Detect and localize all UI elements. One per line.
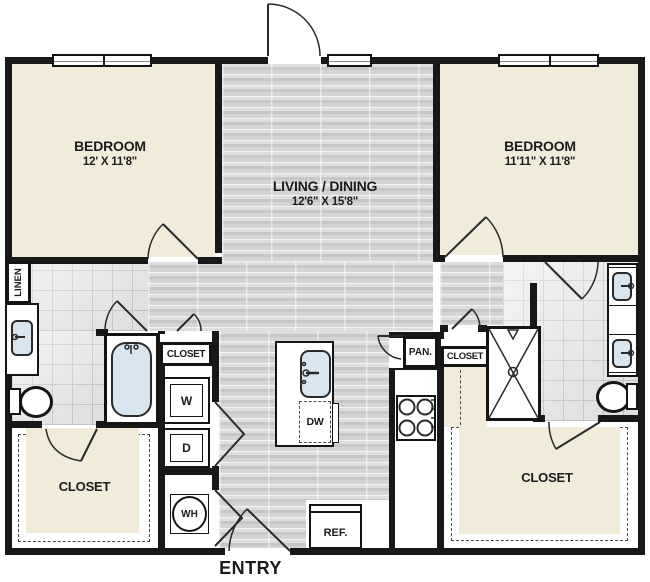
bedroomL-door-leaf	[163, 224, 198, 259]
hall-closet-door-leaf	[177, 314, 194, 331]
entry-label: ENTRY	[198, 558, 303, 579]
floorplan: LINEN CLOSET W D WH DW PAN.	[0, 0, 650, 582]
bedroom-left-dims: 12' X 11'8"	[30, 156, 190, 168]
closet-left-walkin-label: CLOSET	[27, 479, 142, 494]
closetR-door-leaf	[556, 422, 600, 449]
bedroom-right-dims: 11'11" X 11'8"	[460, 156, 620, 168]
water-heater-bifold-door	[215, 490, 242, 546]
laundry-bifold-door	[215, 402, 244, 466]
bedroomR-door-leaf	[445, 217, 486, 257]
closetL-door-arc	[46, 429, 81, 461]
balcony-door-arc	[268, 4, 320, 56]
bathR-door-arc	[582, 262, 598, 299]
hall-closet-door-arc	[194, 314, 201, 331]
bathL-door-arc	[105, 301, 117, 331]
stove-burner-icon	[400, 400, 415, 415]
bathR-hall-door-leaf	[452, 309, 472, 329]
bathL-door-leaf	[117, 301, 147, 331]
island-faucet-knob-icon	[303, 363, 306, 366]
bedroomR-door-arc	[486, 217, 503, 257]
bedroom-left-title: BEDROOM	[30, 138, 190, 154]
entry-door-leaf	[247, 509, 290, 551]
living-dining-title: LIVING / DINING	[240, 178, 410, 194]
bathtub-faucet-icon	[134, 345, 138, 349]
bathtub-faucet-icon	[125, 345, 129, 349]
bathR-door-leaf	[545, 262, 582, 299]
pantry-door-arc	[378, 336, 401, 359]
closet-right-walkin-label: CLOSET	[487, 470, 607, 485]
closetR-door-arc	[549, 422, 556, 449]
bathR-hall-door-arc	[472, 309, 480, 329]
stove-burner-icon	[400, 421, 415, 436]
shower-head-icon	[508, 330, 518, 339]
bedroom-right-title: BEDROOM	[460, 138, 620, 154]
closetL-door-leaf	[81, 429, 97, 461]
stove-burner-icon	[418, 421, 433, 436]
living-dining-dims: 12'6" X 15'8"	[240, 196, 410, 208]
island-faucet-knob-icon	[303, 381, 306, 384]
door-and-detail-overlay	[0, 0, 650, 582]
bedroomL-door-arc	[148, 224, 163, 259]
stove-burner-icon	[418, 400, 433, 415]
